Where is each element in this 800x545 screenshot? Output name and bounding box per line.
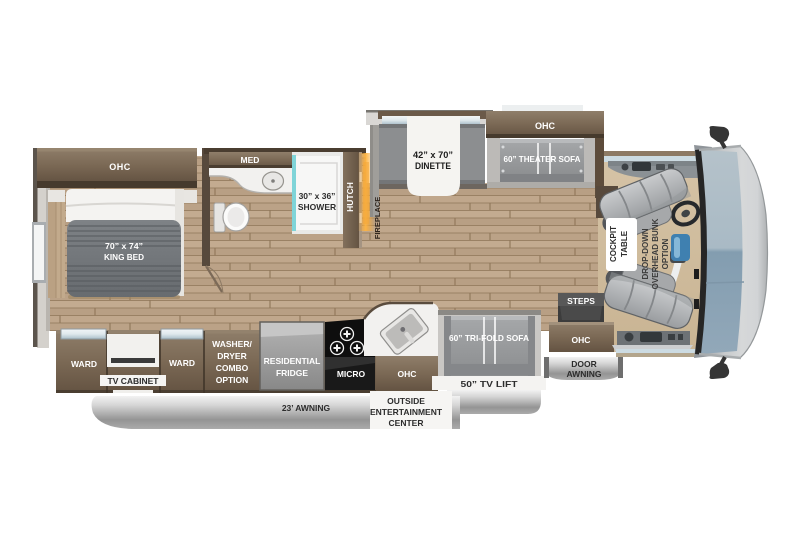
svg-text:OVERHEAD BUNK: OVERHEAD BUNK (651, 218, 660, 289)
svg-text:OHC: OHC (535, 121, 556, 131)
svg-text:MED: MED (241, 155, 260, 165)
svg-text:WARD: WARD (169, 358, 195, 368)
svg-text:TABLE: TABLE (620, 230, 629, 257)
svg-text:TV CABINET: TV CABINET (108, 376, 160, 386)
svg-text:SHOWER: SHOWER (298, 202, 336, 212)
svg-text:AWNING: AWNING (567, 369, 602, 379)
svg-text:FRIDGE: FRIDGE (276, 368, 308, 378)
svg-text:OPTION: OPTION (216, 375, 249, 385)
svg-text:ENTERTAINMENT: ENTERTAINMENT (370, 407, 443, 417)
svg-text:OUTSIDE: OUTSIDE (387, 396, 425, 406)
svg-text:STEPS: STEPS (567, 296, 595, 306)
svg-text:FIREPLACE: FIREPLACE (373, 197, 382, 240)
svg-text:DINETTE: DINETTE (415, 161, 451, 171)
svg-text:60” TRI-FOLD SOFA: 60” TRI-FOLD SOFA (449, 333, 529, 343)
svg-text:OHC: OHC (109, 162, 131, 172)
svg-text:60” THEATER SOFA: 60” THEATER SOFA (504, 154, 581, 164)
svg-text:OHC: OHC (572, 335, 591, 345)
svg-text:23’ AWNING: 23’ AWNING (282, 403, 331, 413)
svg-text:DROP-DOWN: DROP-DOWN (641, 228, 650, 279)
svg-text:COCKPIT: COCKPIT (609, 226, 618, 262)
svg-text:70” x 74”: 70” x 74” (105, 241, 143, 251)
svg-text:DOOR: DOOR (571, 359, 597, 369)
svg-text:KING BED: KING BED (104, 252, 144, 262)
svg-text:RESIDENTIAL: RESIDENTIAL (264, 356, 321, 366)
svg-text:WARD: WARD (71, 359, 97, 369)
svg-text:MICRO: MICRO (337, 369, 366, 379)
svg-text:50” TV LIFT: 50” TV LIFT (461, 379, 519, 389)
svg-text:OHC: OHC (398, 369, 417, 379)
svg-text:DRYER: DRYER (217, 351, 246, 361)
svg-text:WASHER/: WASHER/ (212, 339, 252, 349)
svg-text:42” x 70”: 42” x 70” (413, 150, 453, 160)
svg-text:CENTER: CENTER (389, 418, 424, 428)
svg-text:30” x 36”: 30” x 36” (299, 191, 336, 201)
svg-text:COMBO: COMBO (216, 363, 249, 373)
svg-text:HUTCH: HUTCH (345, 182, 355, 212)
svg-text:OPTION: OPTION (661, 238, 670, 269)
